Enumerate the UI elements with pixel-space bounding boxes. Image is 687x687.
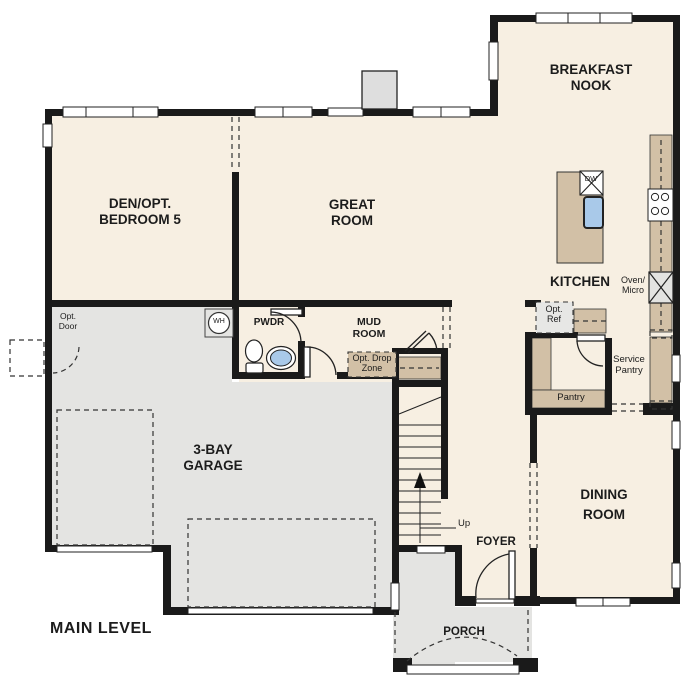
room-label-pantry: Pantry [557,393,584,404]
label-line: Pantry [613,366,645,377]
label-line: Zone [352,363,391,373]
label-line: Micro [621,285,645,295]
room-label-kitchen: KITCHEN [550,274,610,290]
plan-title: MAIN LEVEL [50,620,152,638]
label-line: ROOM [353,328,386,340]
room-label-foyer: FOYER [476,536,516,549]
label-line: Oven/ [621,275,645,285]
room-label-porch: PORCH [443,626,485,639]
label-line: MUD [353,316,386,328]
label-line: DINING [580,485,627,505]
floor-plan: DEN/OPT. BEDROOM 5 GREAT ROOM BREAKFAST … [0,0,687,687]
room-label-garage: 3-BAY GARAGE [183,442,242,473]
room-label-powder: PWDR [254,317,285,329]
label-line: Opt. [545,304,562,314]
oven-micro-box [649,272,673,303]
label-line: Opt. Drop [352,353,391,363]
fireplace [362,71,397,109]
annotation-opt-drop-zone: Opt. Drop Zone [352,353,391,374]
island-sink [584,197,603,228]
label-line: 3-BAY [183,442,242,458]
annotation-water-heater: WH [213,318,225,326]
label-line: DEN/OPT. [99,196,181,212]
room-label-breakfast-nook: BREAKFAST NOOK [550,62,633,93]
floor-plan-drawing [0,0,687,687]
annotation-opt-door: Opt. Door [59,312,77,332]
room-label-mud-room: MUD ROOM [353,316,386,340]
label-line: NOOK [550,78,633,94]
toilet [246,340,264,373]
annotation-oven-micro: Oven/ Micro [621,275,645,296]
room-label-dining-room: DINING ROOM [580,485,627,524]
room-label-den: DEN/OPT. BEDROOM 5 [99,196,181,227]
label-line: ROOM [580,505,627,525]
cooktop [648,189,673,221]
annotation-stairs-up: Up [458,519,470,530]
label-line: Door [59,322,77,332]
powder-sink [267,347,296,370]
room-label-great-room: GREAT ROOM [329,197,375,228]
label-line: GREAT [329,197,375,213]
label-line: Ref [545,314,562,324]
room-label-service-pantry: Service Pantry [613,355,645,377]
annotation-dishwasher: DW [585,175,598,184]
label-line: GARAGE [183,458,242,474]
label-line: ROOM [329,213,375,229]
annotation-opt-ref: Opt. Ref [545,304,562,325]
label-line: BEDROOM 5 [99,212,181,228]
label-line: BREAKFAST [550,62,633,78]
